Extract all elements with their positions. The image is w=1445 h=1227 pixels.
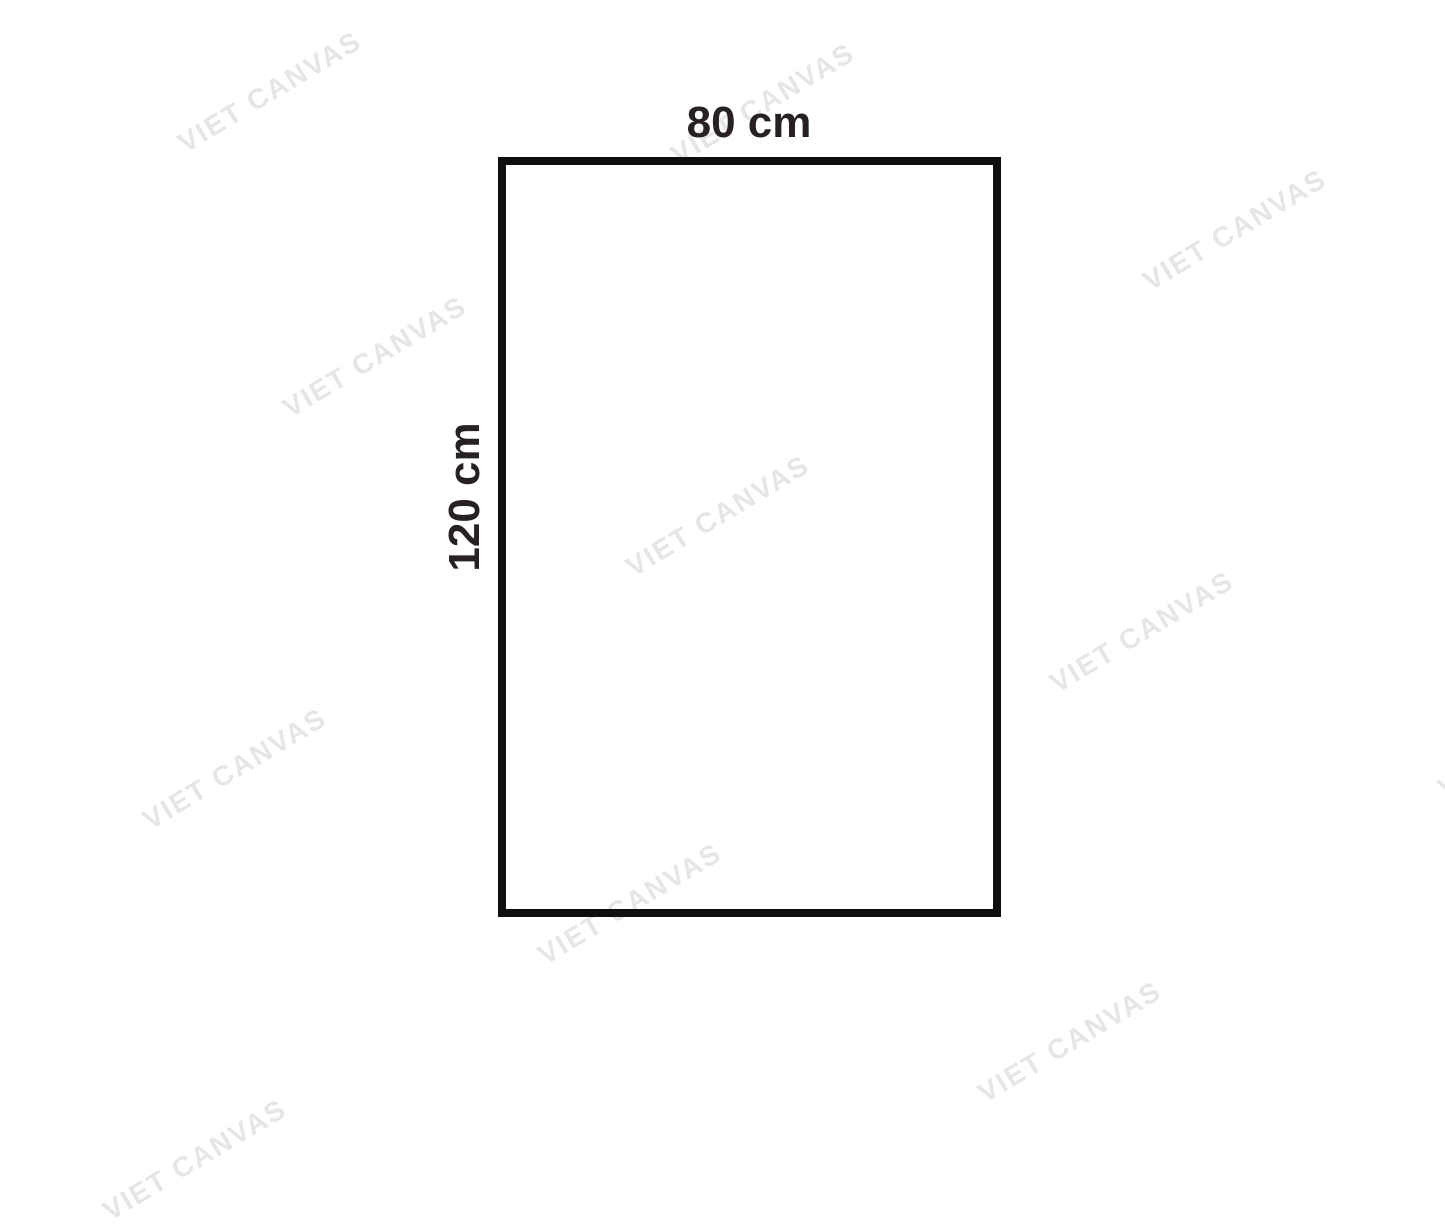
width-dimension-label: 80 cm (687, 98, 812, 148)
height-dimension-label: 120 cm (440, 422, 490, 571)
canvas-size-diagram: 80 cm 120 cm (0, 0, 1445, 1156)
canvas-rectangle (498, 157, 1001, 917)
